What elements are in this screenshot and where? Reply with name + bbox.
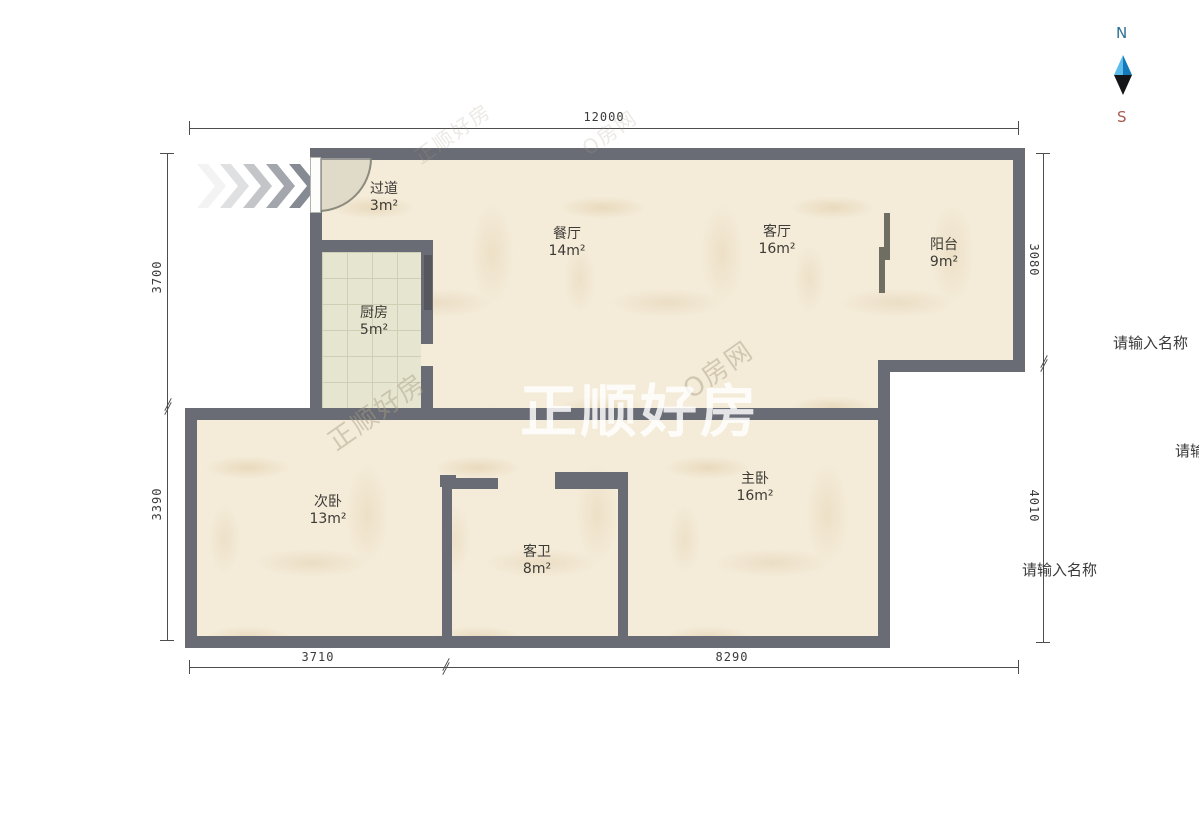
room-name: 过道 xyxy=(349,181,419,198)
room-name: 餐厅 xyxy=(532,226,602,243)
wall-bath-left xyxy=(442,478,452,643)
room-area: 16m² xyxy=(742,241,812,258)
name-placeholder-bottom[interactable]: 请输入名称 xyxy=(1022,559,1097,580)
dim-tick xyxy=(189,660,190,674)
dim-tick xyxy=(160,153,174,154)
compass-north-label: N xyxy=(1116,24,1127,42)
floorplan-page: { "compass": { "north": "N", "south": "S… xyxy=(0,0,1199,815)
room-label-dining[interactable]: 餐厅 14m² xyxy=(532,226,602,260)
room-label-kitchen[interactable]: 厨房 5m² xyxy=(339,305,409,339)
room-label-balcony[interactable]: 阳台 9m² xyxy=(909,237,979,271)
dim-label-left-lower: 3390 xyxy=(150,474,164,534)
room-area: 3m² xyxy=(349,198,419,215)
room-label-second-bedroom[interactable]: 次卧 13m² xyxy=(293,494,363,528)
wall-bath-right-cap xyxy=(612,472,628,484)
room-area: 8m² xyxy=(502,561,572,578)
room-name: 客卫 xyxy=(502,544,572,561)
dim-break-bottom xyxy=(439,663,453,671)
room-name: 次卧 xyxy=(293,494,363,511)
wall-lower-left xyxy=(185,408,197,648)
room-area: 5m² xyxy=(339,322,409,339)
room-label-guest-bath[interactable]: 客卫 8m² xyxy=(502,544,572,578)
dim-label-right-upper: 3080 xyxy=(1027,230,1041,290)
room-name: 厨房 xyxy=(339,305,409,322)
entrance-arrow-icon xyxy=(197,164,319,208)
dim-tick xyxy=(160,640,174,641)
entrance-door-leaf xyxy=(310,157,321,213)
balcony-slider-bar-left xyxy=(879,247,885,293)
room-label-master-bedroom[interactable]: 主卧 16m² xyxy=(720,471,790,505)
compass-needle-north-icon xyxy=(1114,55,1132,75)
wall-balcony-bottom xyxy=(878,360,1025,372)
dim-break-left xyxy=(161,403,175,411)
lower-floor xyxy=(197,420,878,636)
kitchen-door-gap-floor xyxy=(421,344,433,366)
room-area: 13m² xyxy=(293,511,363,528)
dim-label-left-upper: 3700 xyxy=(150,247,164,307)
wall-bottom xyxy=(185,636,890,648)
compass-south-label: S xyxy=(1117,108,1127,126)
wall-upper-right xyxy=(1013,148,1025,372)
dim-label-bottom-right: 8290 xyxy=(692,650,772,664)
dim-label-bottom-left: 3710 xyxy=(278,650,358,664)
dim-tick xyxy=(1036,642,1050,643)
name-placeholder-middle[interactable]: 请输入名称 xyxy=(1175,440,1199,461)
compass-needle-south-icon xyxy=(1114,75,1132,95)
name-placeholder-top[interactable]: 请输入名称 xyxy=(1113,332,1188,353)
wall-master-right xyxy=(878,360,890,648)
room-label-hallway[interactable]: 过道 3m² xyxy=(349,181,419,215)
dim-break-right xyxy=(1037,360,1051,368)
room-name: 客厅 xyxy=(742,224,812,241)
room-area: 14m² xyxy=(532,243,602,260)
dim-line-left xyxy=(167,153,168,640)
wall-kitchen-top xyxy=(310,240,433,252)
room-area: 16m² xyxy=(720,488,790,505)
room-label-living[interactable]: 客厅 16m² xyxy=(742,224,812,258)
wall-bath-right xyxy=(618,472,628,643)
watermark-center: 正顺好房 xyxy=(520,366,760,448)
dim-tick xyxy=(189,121,190,135)
wall-bath-top-left xyxy=(442,478,498,489)
dim-label-right-lower: 4010 xyxy=(1027,476,1041,536)
kitchen-door-leaf xyxy=(424,255,432,310)
dim-tick xyxy=(1018,121,1019,135)
dim-line-bottom xyxy=(189,667,1019,668)
dim-tick xyxy=(1036,153,1050,154)
room-area: 9m² xyxy=(909,254,979,271)
room-name: 主卧 xyxy=(720,471,790,488)
dim-tick xyxy=(1018,660,1019,674)
room-name: 阳台 xyxy=(909,237,979,254)
